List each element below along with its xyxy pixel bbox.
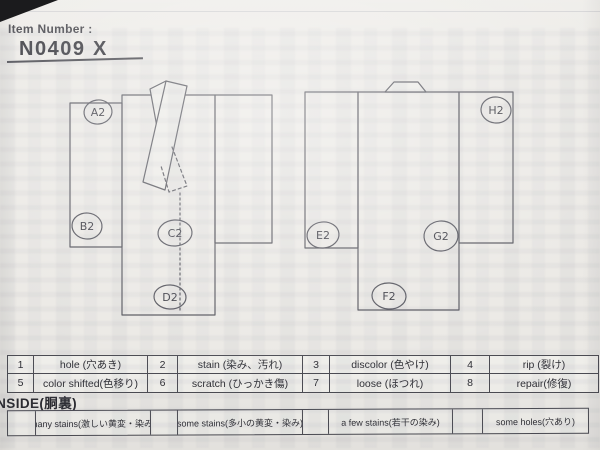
back-right-sleeve [459, 92, 513, 243]
defect-code: 2 [148, 356, 178, 374]
marker-E2: E2 [306, 220, 341, 249]
marker-G2-label: G2 [433, 230, 449, 243]
front-right-sleeve [215, 95, 272, 243]
defect-label: hole (穴あき) [34, 356, 148, 374]
defect-label: repair(修復) [490, 374, 598, 392]
inside-checkbox-cell [151, 411, 178, 435]
defect-label: scratch (ひっかき傷) [178, 374, 303, 392]
defect-code: 7 [303, 374, 330, 392]
inside-options-table: many stains(激しい黄変・染み) some stains(多小の黄変・… [7, 408, 589, 437]
marker-G2: G2 [423, 220, 459, 253]
marker-C2-label: C2 [168, 227, 183, 240]
marker-F2-label: F2 [382, 290, 395, 303]
front-collar-band-right [143, 81, 187, 190]
kimono-back-diagram [305, 82, 513, 310]
defect-code-table: 1 hole (穴あき) 2 stain (染み、汚れ) 3 discolor … [7, 355, 599, 393]
marker-H2-label: H2 [488, 104, 503, 117]
inside-option-label: many stains(激しい黄変・染み) [36, 411, 151, 436]
inside-checkbox-cell [453, 409, 483, 433]
marker-D2: D2 [153, 284, 186, 310]
back-collar [385, 82, 426, 92]
defect-label: loose (ほつれ) [330, 374, 451, 392]
marker-D2-label: D2 [162, 291, 177, 304]
marker-A2-label: A2 [91, 106, 106, 119]
defect-code: 3 [303, 356, 330, 374]
marker-F2: F2 [371, 282, 407, 310]
marker-E2-label: E2 [316, 229, 330, 242]
defect-code: 5 [8, 374, 34, 392]
marker-B2-label: B2 [80, 220, 95, 233]
inside-checkbox-cell [8, 411, 36, 435]
marker-C2: C2 [157, 219, 193, 247]
defect-code: 4 [451, 356, 490, 374]
inside-option-label: a few stains(若干の染み) [329, 409, 453, 434]
back-body [358, 92, 459, 310]
defect-label: discolor (色やけ) [330, 356, 451, 374]
defect-code: 1 [8, 356, 34, 374]
paper-sheet: Item Number : N0409 X [0, 0, 600, 450]
inside-option-label: some stains(多小の黄変・染み) [178, 410, 303, 435]
inside-title: INSIDE(胴裏) [0, 392, 77, 412]
defect-code: 8 [451, 374, 490, 392]
inside-option-label: some holes(穴あり) [483, 409, 588, 433]
marker-B2: B2 [71, 212, 103, 241]
marker-A2: A2 [82, 98, 113, 126]
defect-code: 6 [148, 374, 178, 392]
marker-H2: H2 [480, 96, 513, 125]
defect-label: rip (裂け) [490, 356, 598, 374]
defect-label: stain (染み、汚れ) [178, 356, 303, 374]
inside-checkbox-cell [303, 410, 329, 434]
defect-label: color shifted(色移り) [34, 374, 148, 392]
